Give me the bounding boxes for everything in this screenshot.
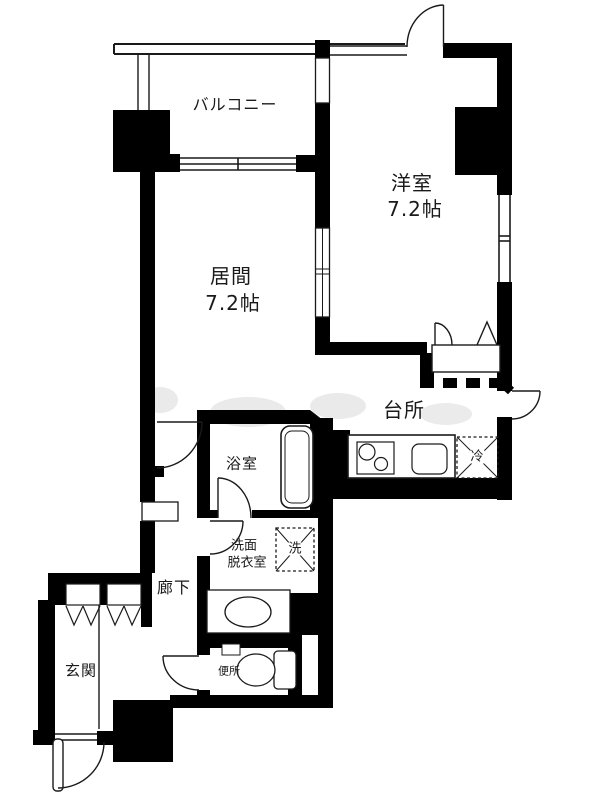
- western-room-size: 7.2帖: [387, 199, 443, 219]
- entrance-label: 玄関: [65, 664, 97, 679]
- entrance-left-wall: [38, 600, 55, 745]
- washbasin: [207, 590, 290, 633]
- toilet-door: [163, 656, 199, 690]
- balcony-divider-panel: [138, 55, 149, 110]
- entrance-door: [53, 734, 104, 791]
- living-room-size: 7.2帖: [205, 293, 261, 313]
- western-room-entry-door: [407, 5, 444, 47]
- bathtub: [281, 426, 313, 508]
- washroom-label-line2: 脱衣室: [227, 557, 266, 570]
- bathroom-door: [218, 478, 251, 518]
- sink: [412, 444, 447, 474]
- balcony-sliding-window: [176, 158, 300, 170]
- living-room-label: 居間: [210, 266, 252, 286]
- pillar-top-left: [113, 110, 170, 172]
- kitchen-counter: [348, 435, 455, 478]
- room-divider-sliding-door: [316, 228, 331, 317]
- kitchen-label: 台所: [383, 400, 425, 420]
- western-right-window: [497, 195, 512, 284]
- meter-box: [142, 502, 178, 521]
- washer-label: 洗: [287, 543, 302, 556]
- balcony-label: バルコニー: [193, 97, 278, 113]
- pipe-shaft: [302, 635, 318, 695]
- pillar-western-room: [455, 107, 507, 175]
- living-hallway-door: [157, 422, 202, 468]
- bathroom-label: 浴室: [226, 457, 258, 472]
- refrigerator-label: 冷: [469, 451, 484, 464]
- western-room-label: 洋室: [391, 173, 433, 193]
- western-room-closet: [432, 322, 500, 372]
- toilet-label: 便所: [218, 666, 240, 677]
- floorplan-drawing: [0, 0, 600, 800]
- kitchen-side-door: [512, 391, 540, 419]
- hallway-label: 廊下: [157, 580, 191, 596]
- divider-glass-panel: [316, 58, 330, 103]
- western-top-window: [330, 45, 407, 56]
- washroom-label-line1: 洗面: [231, 540, 257, 553]
- floorplan-page: バルコニー 洋室 7.2帖 居間 7.2帖 台所 浴室 洗面 脱衣室 廊下 玄関…: [0, 0, 600, 800]
- pillar-bottom: [113, 700, 173, 762]
